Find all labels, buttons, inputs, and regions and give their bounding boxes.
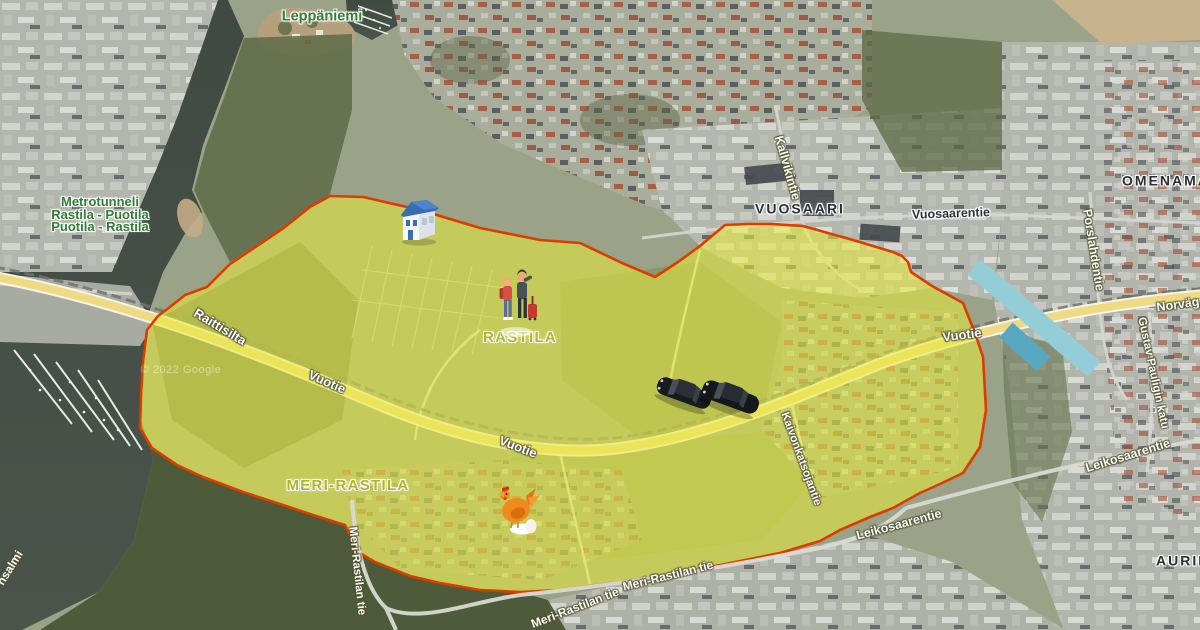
label-omenamaki[interactable]: OMENAMÄ [1122, 174, 1200, 189]
label-metrotunneli-line3: Puotila - Rastila [51, 220, 149, 234]
label-aurinkolahti[interactable]: AURIN [1156, 554, 1200, 569]
label-leppaniemi[interactable]: Leppäniemi [282, 9, 363, 24]
label-meri-rastila[interactable]: MERI-RASTILA [286, 478, 409, 494]
satellite-map-canvas[interactable]: © 2022 Google Leppäniemi Metrotunneli Ra… [0, 0, 1200, 630]
blue-house-icon[interactable] [397, 198, 441, 246]
travelers-icon[interactable] [496, 266, 538, 338]
label-vuosaarentie: Vuosaarentie [912, 206, 990, 222]
label-vuosaari[interactable]: VUOSAARI [755, 202, 845, 217]
chicken-icon[interactable] [494, 482, 542, 536]
map-attribution: © 2022 Google [141, 365, 222, 377]
satellite-imagery [0, 0, 1200, 630]
